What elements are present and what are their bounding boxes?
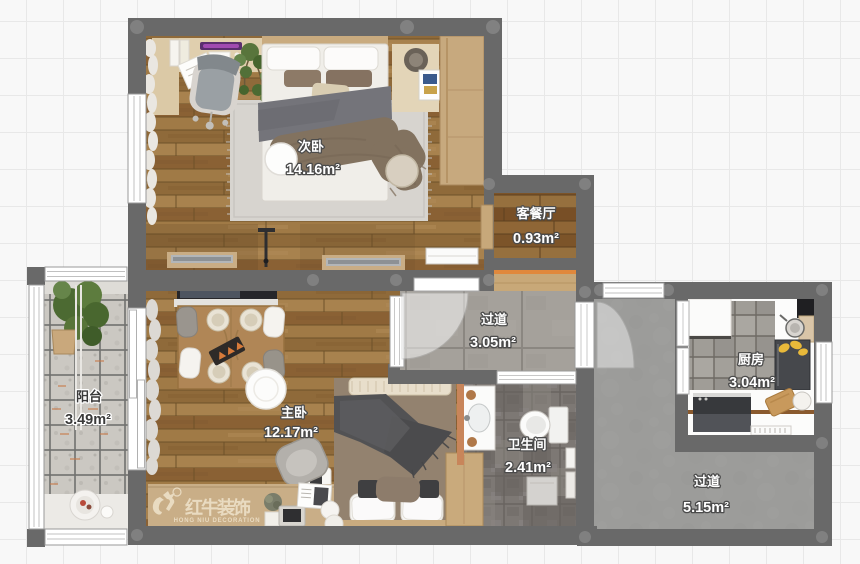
svg-text:3.04m²: 3.04m² bbox=[729, 375, 775, 391]
svg-text:红牛装饰: 红牛装饰 bbox=[185, 497, 251, 518]
svg-text:2.41m²: 2.41m² bbox=[505, 460, 551, 476]
svg-text:12.17m²: 12.17m² bbox=[264, 425, 318, 441]
svg-text:阳台: 阳台 bbox=[76, 389, 102, 404]
svg-text:过道: 过道 bbox=[481, 312, 507, 327]
svg-text:3.49m²: 3.49m² bbox=[65, 412, 111, 428]
svg-text:HONG NIU DECORATION: HONG NIU DECORATION bbox=[174, 518, 261, 524]
svg-text:过道: 过道 bbox=[694, 474, 720, 489]
svg-text:14.16m²: 14.16m² bbox=[286, 162, 340, 178]
svg-text:5.15m²: 5.15m² bbox=[683, 500, 729, 516]
svg-text:3.05m²: 3.05m² bbox=[470, 335, 516, 351]
svg-text:0.93m²: 0.93m² bbox=[513, 231, 559, 247]
svg-text:客餐厅: 客餐厅 bbox=[516, 206, 555, 221]
svg-text:次卧: 次卧 bbox=[298, 139, 324, 154]
svg-text:卫生间: 卫生间 bbox=[507, 437, 546, 452]
svg-text:厨房: 厨房 bbox=[738, 352, 764, 367]
svg-text:主卧: 主卧 bbox=[281, 405, 307, 420]
